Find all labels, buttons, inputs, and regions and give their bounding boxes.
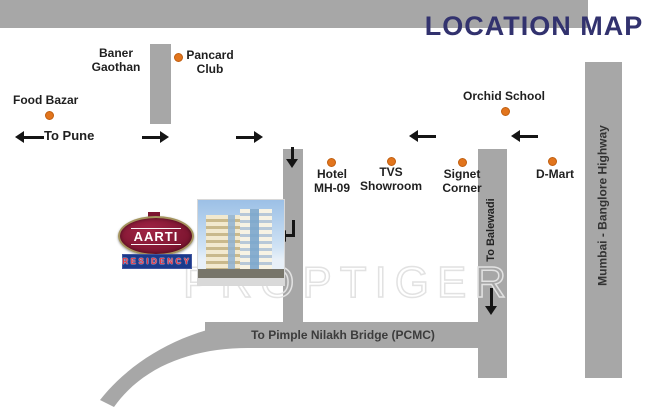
page-title: LOCATION MAP [424, 11, 644, 42]
label-line: Baner [85, 46, 147, 60]
label-baner-gaothan: Baner Gaothan [85, 46, 147, 74]
logo-name: AARTI [131, 228, 182, 245]
label-to-pune: To Pune [44, 128, 114, 143]
marker-food-bazar [45, 111, 54, 120]
logo-subtitle-bar: RESIDENCY [122, 254, 192, 269]
building-ground [198, 269, 284, 278]
label-signet-corner: Signet Corner [436, 167, 488, 195]
label-hotel-mh09: Hotel MH-09 [309, 167, 355, 195]
label-line: TVS [359, 165, 423, 179]
marker-hotel-mh09 [327, 158, 336, 167]
baner-side-road [150, 44, 171, 124]
arrow-right-icon [142, 136, 160, 139]
label-line: Hotel [309, 167, 355, 181]
building-glass-column [250, 209, 259, 271]
label-line: MH-09 [309, 181, 355, 195]
label-mumbai-banglore-highway: Mumbai - Banglore Highway [596, 121, 611, 291]
building-base-strip [198, 278, 284, 285]
arrow-left-to-pune [24, 136, 44, 139]
label-food-bazar: Food Bazar [13, 93, 93, 107]
arrow-right-icon [236, 136, 254, 139]
logo-subtitle: RESIDENCY [122, 257, 191, 266]
label-dmart: D-Mart [526, 167, 584, 181]
logo-oval: AARTI [118, 216, 194, 256]
label-line: Club [182, 62, 238, 76]
location-map: LOCATION MAP PROPTIGER Baner Gaothan Pan… [0, 0, 650, 414]
arrow-left-icon [520, 135, 538, 138]
site-building-photo [198, 200, 284, 285]
label-to-balewadi: To Balewadi [485, 175, 499, 285]
label-pimple-nilakh-road: To Pimple Nilakh Bridge (PCMC) [212, 328, 474, 342]
aarti-residency-logo: AARTI RESIDENCY [112, 210, 202, 266]
label-tvs-showroom: TVS Showroom [359, 165, 423, 193]
label-line: Signet [436, 167, 488, 181]
label-line: Showroom [359, 179, 423, 193]
marker-dmart [548, 157, 557, 166]
label-line: Corner [436, 181, 488, 195]
arrow-down-site-road [291, 147, 294, 159]
label-line: Pancard [182, 48, 238, 62]
marker-orchid-school [501, 107, 510, 116]
label-line: Gaothan [85, 60, 147, 74]
building-glass-column [228, 215, 235, 271]
arrow-left-icon [418, 135, 436, 138]
label-pancard-club: Pancard Club [182, 48, 238, 76]
label-orchid-school: Orchid School [455, 89, 553, 103]
marker-signet-corner [458, 158, 467, 167]
arrow-down-balewadi [490, 288, 493, 306]
